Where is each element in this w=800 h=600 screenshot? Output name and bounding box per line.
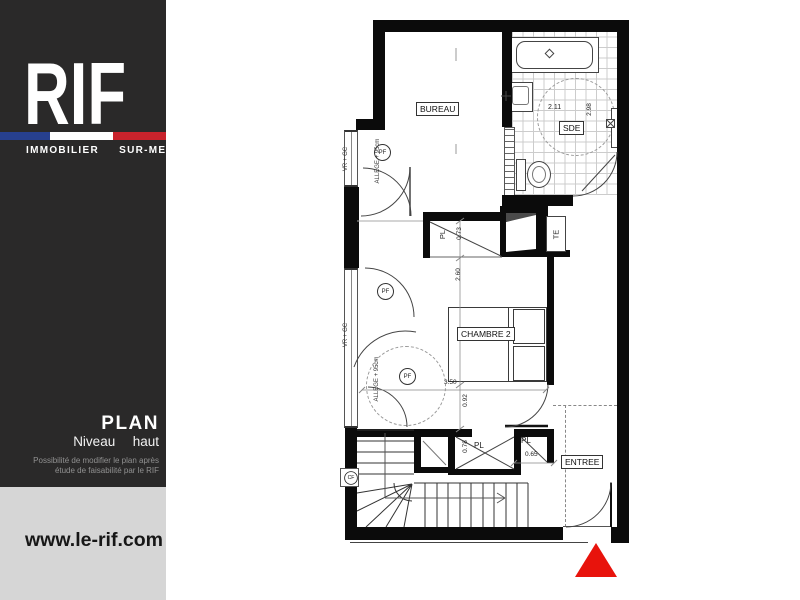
window-2-allege-label: ALLEGE + 95cm <box>374 354 380 404</box>
dim-0-78: 0.78 <box>462 440 469 453</box>
te-box: TE <box>546 216 566 252</box>
dim-0-73: 0.73 <box>456 227 463 240</box>
dim-2-11: 2.11 <box>548 104 561 111</box>
page: { "sidebar": { "logo_text": "RIF", "tagl… <box>0 0 800 600</box>
dimension-line-closet-r <box>511 460 557 466</box>
north-arrow-triangle <box>575 543 617 577</box>
pf3-swing-arc-a <box>354 331 416 367</box>
entry-door-arc <box>566 482 611 527</box>
closet-a-line <box>423 441 446 465</box>
label-pl-right: PL <box>521 436 531 445</box>
pf-marker-3: PF <box>399 368 416 385</box>
stair-treads-run <box>414 483 528 527</box>
faucet-icon <box>501 91 511 101</box>
plan-linework <box>0 0 800 600</box>
dim-3-50: 3.50 <box>444 379 457 386</box>
room-label-chambre2: CHAMBRE 2 <box>457 327 515 341</box>
pf-marker-2: PF <box>377 283 394 300</box>
label-pl-middle: PL <box>474 441 484 450</box>
room-label-entree: ENTREE <box>561 455 603 469</box>
room-label-sde: SDE <box>559 121 584 135</box>
room-label-bureau: BUREAU <box>416 102 459 116</box>
chambre-door-arc <box>505 384 548 427</box>
sde-door-arc <box>573 152 617 196</box>
sde-door-leaf <box>582 155 615 191</box>
dim-0-92: 0.92 <box>462 394 469 407</box>
window-1-vr-label: VR + GC <box>343 143 349 175</box>
window-2-vr-label: VR + GC <box>343 319 349 351</box>
label-te: TE <box>552 229 561 239</box>
dim-2-98: 2.98 <box>586 103 593 116</box>
bureau-door-arc <box>361 167 410 216</box>
window-1-allege-label: ALLEGE + 95cm <box>375 136 381 186</box>
label-pl-upper: PL <box>438 230 447 239</box>
dim-2-60: 2.60 <box>455 268 462 281</box>
valve-x-icon <box>607 120 614 127</box>
dim-0-65: 0.65 <box>525 451 538 458</box>
cf-marker: CF <box>344 471 358 485</box>
